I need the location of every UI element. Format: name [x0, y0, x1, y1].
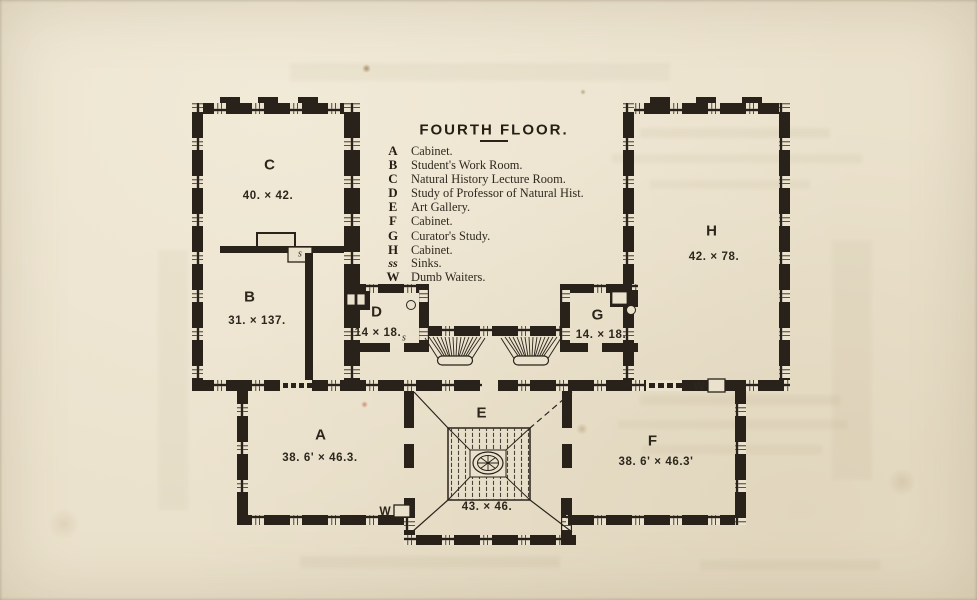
wall-left-wing-north	[192, 103, 360, 114]
dumb-waiter-label-south: W	[379, 504, 390, 518]
legend-key: H	[384, 243, 402, 256]
legend-key: B	[384, 158, 402, 171]
room-label-f: F	[648, 433, 658, 450]
opening-dash	[299, 383, 304, 388]
opening-dash	[658, 383, 664, 388]
legend-row: WDumb Waiters.	[384, 270, 584, 284]
rosette-spokes	[478, 456, 499, 471]
legend-key: D	[384, 186, 402, 199]
sink-label-d: s	[402, 333, 406, 344]
wall-f-south	[566, 515, 746, 525]
room-dims-h: 42. × 78.	[689, 251, 739, 263]
legend-row: HCabinet.	[384, 243, 584, 257]
spine-wall-segment	[498, 380, 646, 391]
sink-fixture	[627, 306, 636, 315]
wall-right-wing-east	[779, 103, 790, 380]
legend-row: BStudent's Work Room.	[384, 158, 584, 172]
legend-label: Art Gallery.	[411, 201, 470, 214]
opening-dash	[283, 383, 288, 388]
legend-label: Cabinet.	[411, 244, 453, 257]
legend-label: Cabinet.	[411, 215, 453, 228]
parapet-block	[742, 97, 762, 104]
wall-d-south-left	[344, 343, 390, 352]
legend-label: Curator's Study.	[411, 230, 490, 243]
fan-stair-west	[425, 337, 485, 365]
partition-e-f-upper	[562, 391, 572, 428]
room-dims-c: 40. × 42.	[243, 190, 293, 202]
scanned-plate-page: FOURTH FLOOR. ACabinet. BStudent's Work …	[0, 0, 977, 600]
fan-stair-east	[501, 337, 561, 365]
legend-label: Study of Professor of Natural Hist.	[411, 187, 584, 200]
room-label-g: G	[592, 307, 605, 324]
room-label-a: A	[315, 427, 327, 444]
opening-dash	[676, 383, 682, 388]
wall-a-west	[237, 390, 248, 525]
parapet-block	[258, 97, 278, 104]
wall-stair-hall-north	[429, 326, 560, 336]
legend-key: E	[384, 200, 402, 213]
opening-dash	[291, 383, 296, 388]
parapet-block	[220, 97, 240, 104]
dumb-waiter-shaft-south	[394, 505, 410, 517]
parapet-block	[696, 97, 716, 104]
parapet-block	[298, 97, 318, 104]
legend-row: CNatural History Lecture Room.	[384, 172, 584, 186]
room-dims-a: 38. 6' × 46.3.	[282, 452, 357, 464]
partition-a-e-lower	[404, 444, 414, 468]
legend-label: Dumb Waiters.	[411, 271, 485, 284]
d-closet-door	[357, 294, 365, 305]
legend-key: W	[384, 270, 402, 283]
roof-diagonal-sw	[412, 500, 448, 532]
wall-g-south-left	[560, 343, 588, 352]
wall-g-west	[560, 284, 570, 352]
spine-wall-segment	[312, 380, 482, 391]
dumb-waiter-shaft-east	[708, 379, 725, 392]
wall-g-south-right	[602, 343, 638, 352]
opening-dash	[307, 383, 312, 388]
opening-dash	[667, 383, 673, 388]
legend-label: Sinks.	[411, 257, 442, 270]
room-legend: ACabinet. BStudent's Work Room. CNatural…	[384, 144, 584, 284]
sink-fixture	[407, 301, 416, 310]
legend-label: Student's Work Room.	[411, 159, 523, 172]
title-rule	[480, 140, 508, 142]
wall-f-east	[735, 390, 746, 525]
wall-e-south	[404, 535, 576, 545]
d-closet-door	[347, 294, 355, 305]
room-label-c: C	[264, 157, 276, 174]
room-label-b: B	[244, 289, 256, 306]
roof-diagonal-nw	[414, 392, 448, 428]
legend-label: Cabinet.	[411, 145, 453, 158]
legend-key: A	[384, 144, 402, 157]
dumb-waiter-label-east: W	[693, 379, 704, 393]
wall-right-wing-north	[623, 103, 790, 114]
spine-wall-segment	[192, 380, 280, 391]
legend-row: DStudy of Professor of Natural Hist.	[384, 186, 584, 200]
plate-title: FOURTH FLOOR.	[419, 122, 568, 139]
partition-e-f-lower	[562, 444, 572, 468]
opening-dash	[649, 383, 655, 388]
legend-key: F	[384, 214, 402, 227]
wall-left-wing-west	[192, 103, 203, 390]
legend-key: C	[384, 172, 402, 185]
parapet-block	[650, 97, 670, 104]
legend-label: Natural History Lecture Room.	[411, 173, 566, 186]
legend-key: ss	[384, 257, 402, 270]
legend-row: ACabinet.	[384, 144, 584, 158]
legend-row: FCabinet.	[384, 214, 584, 228]
legend-row: ssSinks.	[384, 257, 584, 270]
legend-row: EArt Gallery.	[384, 200, 584, 214]
legend-key: G	[384, 229, 402, 242]
lecture-platform	[257, 233, 295, 247]
legend-row: GCurator's Study.	[384, 229, 584, 243]
room-dims-g: 14. × 18.	[576, 329, 626, 341]
room-dims-e: 43. × 46.	[462, 501, 512, 513]
left-wing-walls	[192, 97, 360, 390]
partition-b-corridor	[305, 253, 313, 380]
room-label-h: H	[706, 223, 718, 240]
partition-a-e-upper	[404, 391, 414, 428]
g-closet-door	[612, 292, 627, 304]
room-label-d: D	[371, 304, 383, 321]
room-dims-f: 38. 6' × 46.3'	[619, 456, 694, 468]
sink-label-closet: s	[298, 249, 302, 260]
room-label-e: E	[476, 405, 487, 422]
room-dims-d: 14 × 18.	[355, 327, 402, 339]
stair-hall	[425, 326, 561, 365]
wall-d-south-right	[404, 343, 429, 352]
room-dims-b: 31. × 137.	[228, 315, 285, 327]
